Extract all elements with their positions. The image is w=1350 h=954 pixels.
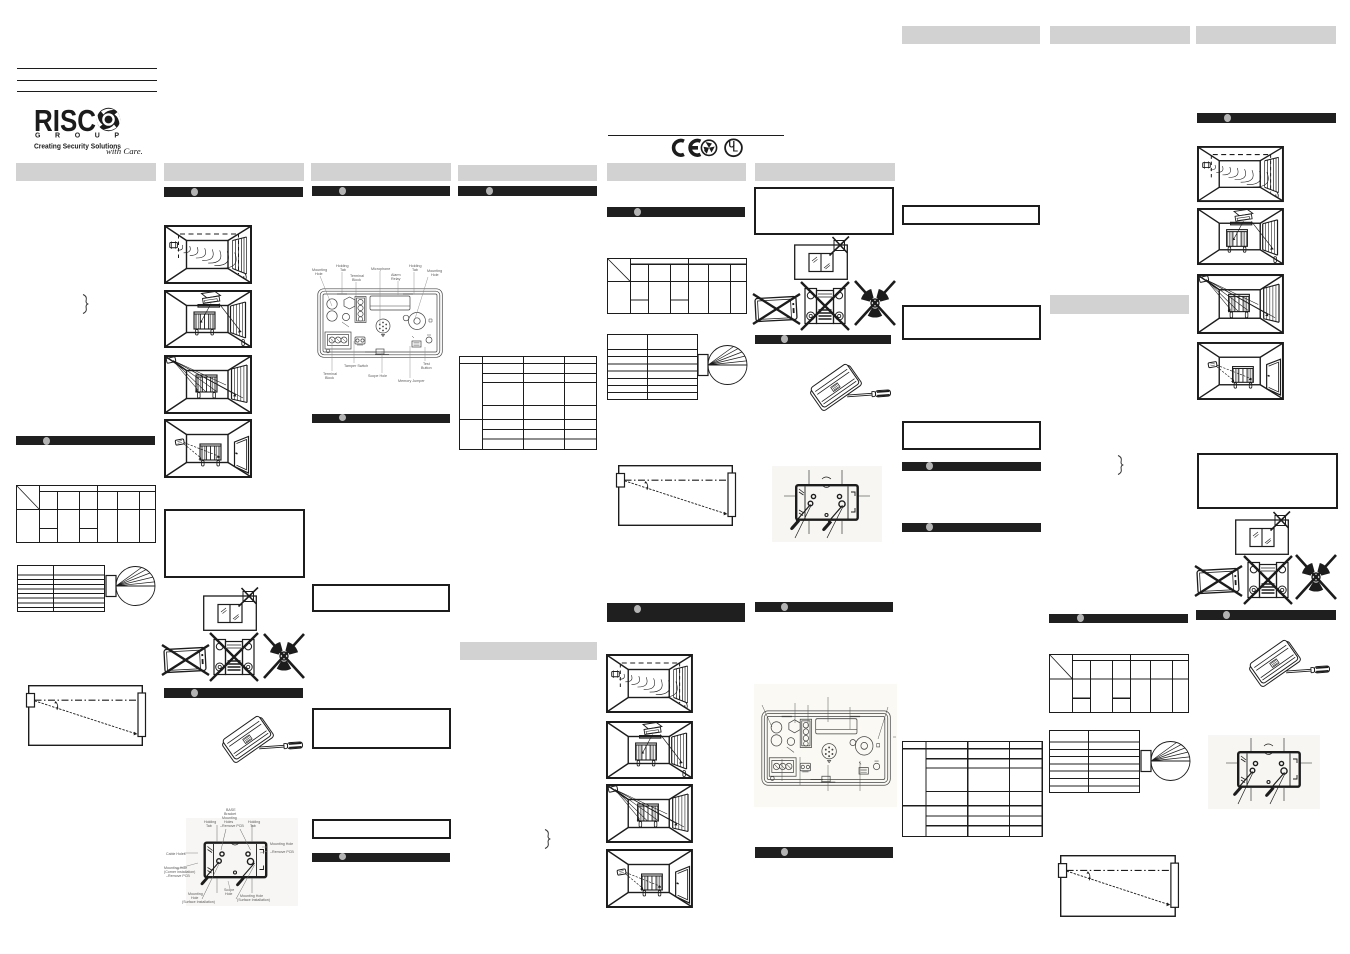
svg-text:Scope Hole: Scope Hole xyxy=(368,374,387,378)
svg-text:Tamper Switch: Tamper Switch xyxy=(344,364,368,368)
svg-text:Hole: Hole xyxy=(315,272,323,276)
svg-text:Tab: Tab xyxy=(340,268,346,272)
svg-text:GROUP: GROUP xyxy=(35,133,134,140)
svg-text:Button: Button xyxy=(421,366,432,370)
svg-text:–Remove PCB: –Remove PCB xyxy=(220,824,244,828)
svg-text:Tab: Tab xyxy=(250,824,256,828)
svg-text:Tab: Tab xyxy=(412,268,418,272)
svg-text:Hole: Hole xyxy=(431,273,439,277)
svg-text:Microphone: Microphone xyxy=(371,267,390,271)
svg-text:Relay: Relay xyxy=(391,277,401,281)
svg-text:Block: Block xyxy=(352,278,361,282)
svg-text:Hole: Hole xyxy=(225,892,232,896)
svg-text:(Surface Installation): (Surface Installation) xyxy=(182,900,215,904)
svg-text:Memory Jumper: Memory Jumper xyxy=(398,379,425,383)
svg-text:–Remove PCB: –Remove PCB xyxy=(166,874,190,878)
svg-text:(Surface Installation): (Surface Installation) xyxy=(237,898,270,902)
svg-text:Cable Holes: Cable Holes xyxy=(166,852,186,856)
svg-text:Block: Block xyxy=(325,376,334,380)
svg-text:with Care.: with Care. xyxy=(106,146,143,156)
svg-text:–Remove PCB: –Remove PCB xyxy=(270,850,294,854)
svg-text:Mounting Hole: Mounting Hole xyxy=(270,842,293,846)
svg-text:Tab: Tab xyxy=(206,824,212,828)
